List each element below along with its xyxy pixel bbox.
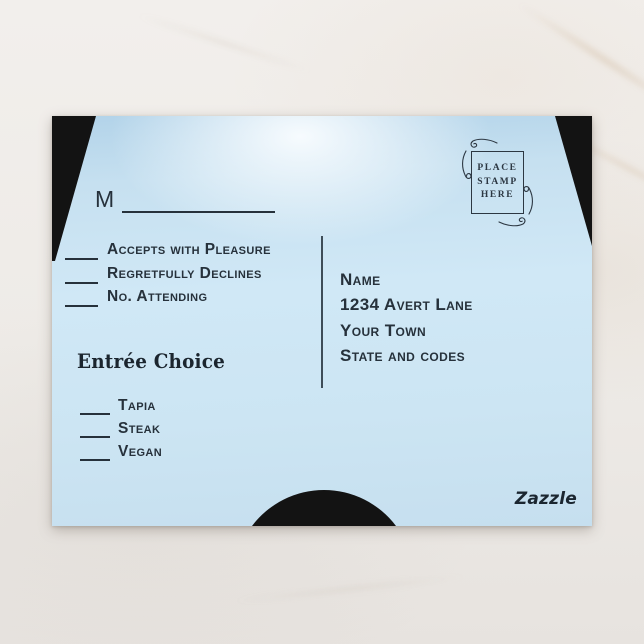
- blank-check-line: [80, 459, 110, 461]
- stamp-text: PLACE STAMP HERE: [472, 162, 523, 203]
- entree-option-vegan: Vegan: [80, 443, 162, 466]
- marble-vein: [230, 572, 470, 605]
- entree-option-label: Vegan: [118, 443, 162, 461]
- guest-name-line: M: [95, 188, 275, 211]
- flourish-top-icon: [471, 139, 497, 147]
- black-triangle-top-right: [555, 116, 592, 246]
- entree-option-label: Steak: [118, 420, 160, 438]
- black-wedge-top-left: [52, 116, 96, 261]
- stamp-line: STAMP: [472, 176, 523, 190]
- address-line-street: 1234 Avert Lane: [340, 292, 473, 317]
- stamp-box: PLACE STAMP HERE: [471, 151, 524, 214]
- rsvp-options: Accepts with Pleasure Regretfully Declin…: [65, 241, 271, 312]
- address-block: Name 1234 Avert Lane Your Town State and…: [340, 267, 473, 368]
- address-line-town: Your Town: [340, 318, 473, 343]
- entree-choice-heading: Entrée Choice: [77, 349, 225, 373]
- marble-vein: [514, 0, 644, 121]
- flourish-left-icon: [463, 151, 471, 178]
- zazzle-logo: Zazzle: [515, 489, 577, 509]
- rsvp-option-label: No. Attending: [107, 288, 207, 306]
- blank-check-line: [65, 282, 98, 284]
- rsvp-option-accepts: Accepts with Pleasure: [65, 241, 271, 265]
- blank-check-line: [65, 258, 98, 260]
- entree-option-tapia: Tapia: [80, 397, 162, 420]
- address-divider-line: [321, 236, 323, 388]
- postcard: M Accepts with Pleasure Regretfully Decl…: [52, 116, 592, 526]
- blank-check-line: [80, 436, 110, 438]
- stamp-line: HERE: [472, 189, 523, 203]
- address-line-state: State and codes: [340, 343, 473, 368]
- rsvp-option-declines: Regretfully Declines: [65, 265, 271, 289]
- flourish-right-icon: [524, 187, 532, 214]
- marble-background: M Accepts with Pleasure Regretfully Decl…: [0, 0, 644, 644]
- rsvp-option-label: Regretfully Declines: [107, 265, 262, 283]
- stamp-area: PLACE STAMP HERE: [457, 136, 547, 236]
- blank-check-line: [80, 413, 110, 415]
- marble-vein: [134, 11, 317, 76]
- m-label: M: [95, 188, 115, 211]
- entree-option-label: Tapia: [118, 397, 156, 415]
- rsvp-option-label: Accepts with Pleasure: [107, 241, 271, 259]
- stamp-line: PLACE: [472, 162, 523, 176]
- black-dome-bottom: [252, 490, 396, 526]
- entree-options: Tapia Steak Vegan: [80, 397, 162, 466]
- entree-option-steak: Steak: [80, 420, 162, 443]
- rsvp-option-attending: No. Attending: [65, 288, 271, 312]
- address-line-name: Name: [340, 267, 473, 292]
- blank-write-line: [122, 211, 275, 213]
- flourish-bottom-icon: [499, 218, 525, 226]
- blank-check-line: [65, 305, 98, 307]
